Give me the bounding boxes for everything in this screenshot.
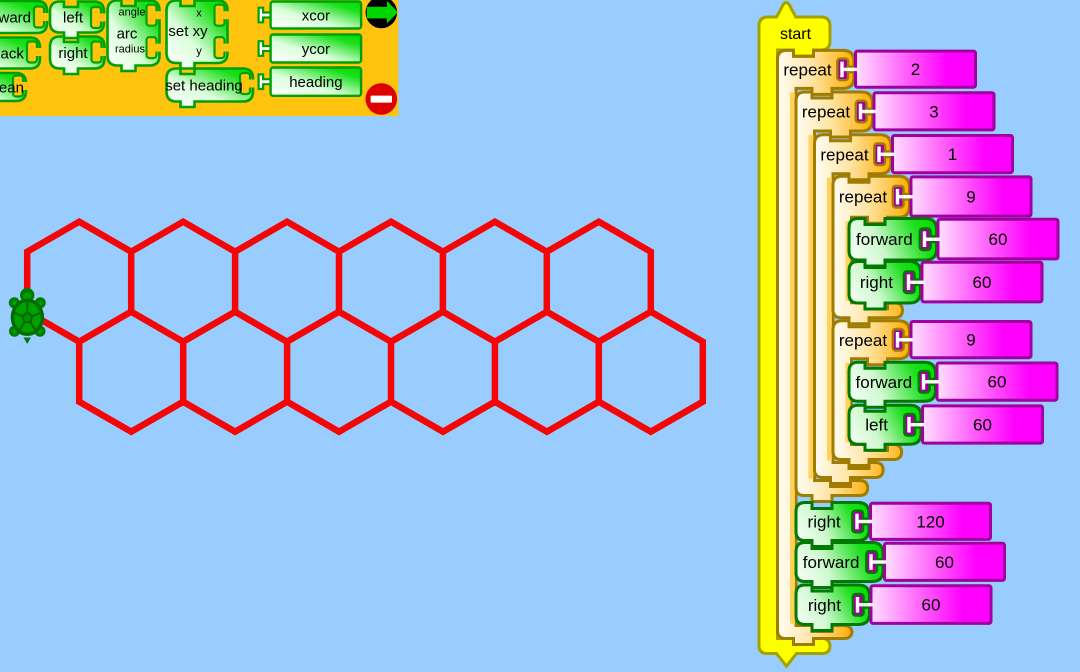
svg-text:y: y (196, 46, 202, 58)
svg-text:forward: forward (856, 373, 913, 392)
svg-text:9: 9 (966, 331, 975, 350)
svg-text:60: 60 (935, 553, 954, 572)
svg-text:ycor: ycor (302, 41, 330, 58)
svg-text:9: 9 (966, 188, 975, 207)
svg-text:angle: angle (119, 7, 146, 19)
svg-text:right: right (58, 45, 88, 62)
svg-text:1: 1 (948, 145, 957, 164)
svg-text:clean: clean (0, 79, 24, 96)
svg-text:arc: arc (117, 26, 138, 43)
svg-text:set heading: set heading (165, 77, 243, 94)
svg-text:3: 3 (929, 102, 938, 121)
svg-text:radius: radius (115, 44, 145, 56)
svg-text:right: right (808, 513, 841, 532)
svg-text:60: 60 (973, 416, 992, 435)
svg-text:start: start (780, 26, 812, 43)
svg-text:repeat: repeat (802, 103, 850, 122)
svg-text:120: 120 (916, 512, 944, 531)
svg-text:left: left (865, 416, 888, 435)
svg-text:60: 60 (989, 230, 1008, 249)
svg-text:repeat: repeat (839, 331, 887, 350)
svg-text:x: x (196, 8, 202, 20)
svg-text:heading: heading (289, 74, 342, 91)
svg-text:right: right (860, 273, 893, 292)
svg-text:forward: forward (803, 553, 860, 572)
svg-text:repeat: repeat (839, 188, 887, 207)
svg-text:2: 2 (911, 60, 920, 79)
svg-text:forward: forward (0, 9, 31, 26)
svg-text:set xy: set xy (168, 23, 208, 40)
svg-text:60: 60 (973, 273, 992, 292)
svg-text:back: back (0, 45, 24, 62)
svg-text:60: 60 (922, 596, 941, 615)
svg-text:left: left (63, 9, 84, 26)
svg-text:forward: forward (856, 230, 913, 249)
svg-text:60: 60 (988, 373, 1007, 392)
svg-text:repeat: repeat (820, 145, 868, 164)
svg-text:right: right (808, 596, 841, 615)
svg-text:repeat: repeat (783, 60, 831, 79)
svg-text:xcor: xcor (302, 7, 330, 24)
